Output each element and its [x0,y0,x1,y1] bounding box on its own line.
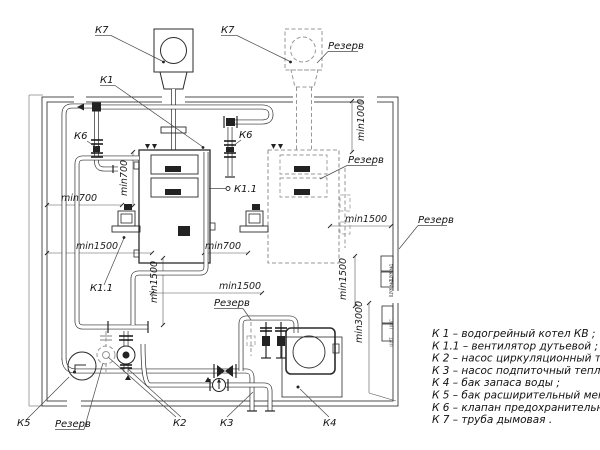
label-k3: К3 [220,418,233,429]
legend-line: К 1.1 – вентилятор дутьевой ; [432,340,598,352]
label-k6-right: К6 [239,130,252,141]
label-k6-left: К6 [74,131,87,142]
label-reserve-pump: Резерв [55,419,91,430]
fan-k11-left [112,204,140,232]
label-reserve-wall: Резерв [418,215,454,226]
label-k2: К2 [173,418,186,429]
boiler-k1 [134,144,215,263]
dim-min700-left-v: min700 [119,160,130,196]
makeup-pumps-k3 [247,322,287,358]
dim-min700-center: min700 [205,241,241,252]
label-k11-left: К1.1 [90,283,113,294]
label-k4: К4 [323,418,336,429]
dim-min1500-right: min1500 [345,214,387,225]
dim-min1500-center: min1500 [219,281,261,292]
chimney-right-reserve [285,29,322,150]
pipe-fittings [77,103,275,412]
tank-k4 [282,328,342,397]
label-reserve-makeup: Резерв [214,298,250,309]
cabinet-label: ЩУТ [389,337,394,347]
dim-min1500-left: min1500 [76,241,118,252]
label-k1: К1 [100,75,113,86]
label-reserve-boiler: Резерв [348,155,384,166]
label-k7-right: К7 [221,25,235,36]
drawing-canvas: ЩУК №1 ЩУК №2 ШУС ЩУТ /* cabinet text ce… [0,0,600,450]
chimney-left [154,29,193,150]
pump-k2-reserve [97,331,115,372]
legend-line: К 5 – бак расширительный мембранный ; [432,390,600,402]
label-k7-left: К7 [95,25,109,36]
legend-line: К 7 – труба дымовая . [432,414,552,426]
fan-k11-right [240,204,268,232]
dim-min1000: min1000 [356,99,367,141]
boiler-room-layout-drawing: ЩУК №1 ЩУК №2 ШУС ЩУТ /* cabinet text ce… [0,0,600,450]
dim-min1500-center-v: min1500 [149,261,160,303]
dim-min3000: min3000 [354,301,365,343]
tank-k5 [68,352,96,380]
dim-min1500-right-v: min1500 [338,258,349,300]
legend-line: К 4 – бак запаса воды ; [432,377,560,389]
legend-line: К 3 – насос подпиточный теплосети ; [432,365,600,377]
legend-line: К 6 – клапан предохранительный ; [432,402,600,414]
legend-line: К 1 – водогрейный котел КВ ; [432,328,595,340]
cabinet-label: ЩУК №2 [389,279,394,297]
legend-line: К 2 – насос циркуляционный теплосети ; [432,353,600,365]
label-k11-right: К1.1 [234,184,257,195]
label-reserve-chimney: Резерв [328,41,364,52]
dim-min700-left-h: min700 [61,193,97,204]
boiler-reserve [268,144,350,263]
cabinet-label: ШУС [389,319,394,329]
pump-k2-main [117,331,135,372]
label-k5: К5 [17,418,30,429]
cabinet-label: ЩУК №1 [389,263,394,281]
legend: К 1 – водогрейный котел КВ ; К 1.1 – вен… [432,328,600,426]
